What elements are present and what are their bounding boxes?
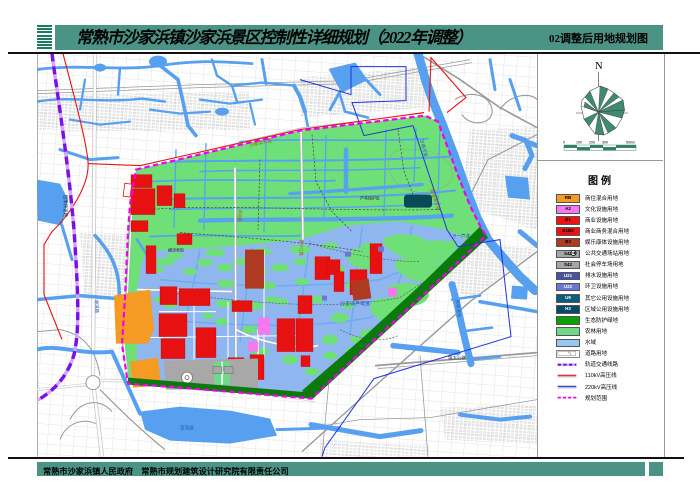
- svg-text:0: 0: [563, 141, 565, 145]
- svg-text:ラ一芦漾: ラ一芦漾: [452, 233, 470, 240]
- svg-text:昆承快速路: 昆承快速路: [62, 195, 69, 218]
- svg-text:芦苇保护区: 芦苇保护区: [360, 195, 380, 201]
- svg-text:草荡湖: 草荡湖: [180, 425, 194, 432]
- svg-text:横泾老街: 横泾老街: [168, 247, 184, 253]
- svg-text:100: 100: [576, 141, 582, 145]
- svg-text:500m: 500m: [626, 141, 635, 145]
- svg-text:200: 200: [589, 141, 595, 145]
- svg-text:沙家浜芦苇荡: 沙家浜芦苇荡: [340, 301, 370, 308]
- svg-text:N: N: [595, 61, 603, 72]
- svg-text:黄沙江路: 黄沙江路: [299, 240, 305, 256]
- svg-text:300: 300: [602, 141, 608, 145]
- svg-text:锦太公路: 锦太公路: [448, 355, 466, 362]
- svg-text:芦荡路: 芦荡路: [237, 210, 243, 222]
